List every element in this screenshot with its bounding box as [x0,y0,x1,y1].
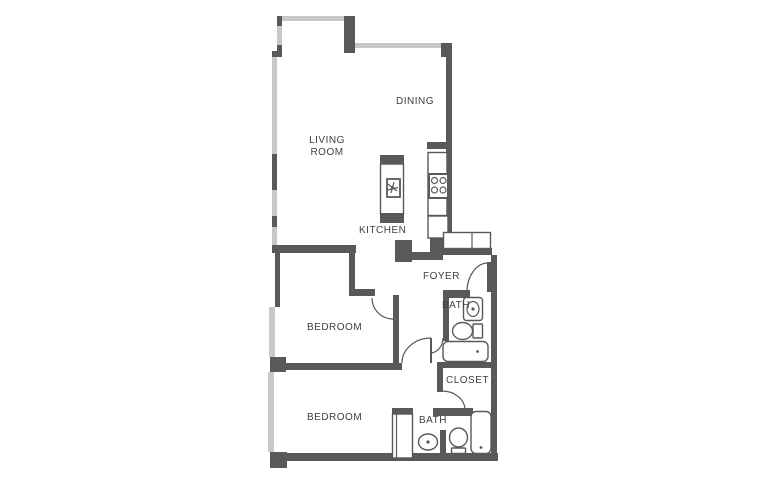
entry-door-arc [467,263,488,292]
upper-bedroom-door-arc [372,298,393,319]
lower-bedroom-label: BEDROOM [307,412,362,424]
range-burners-icon [429,174,448,198]
upper-bath-label: BATH [442,300,470,312]
dining-label: DINING [396,96,434,108]
floor-plan-drawing [0,0,768,480]
closet-label: CLOSET [446,375,489,387]
upper-bedroom-label: BEDROOM [307,322,362,334]
living-room-label: LIVING ROOM [297,135,357,159]
foyer-coat-closet [444,233,491,249]
island-sink-icon [387,179,400,197]
window-walls [268,16,441,452]
upper-bath-tub-icon [443,342,488,362]
lower-bath-label: BATH [419,415,447,427]
lower-bedroom-door [402,338,431,363]
foyer-label: FOYER [423,271,460,283]
floor-plan: LIVING ROOM DINING KITCHEN FOYER BATH CL… [0,0,768,480]
closet-door-arc [442,391,465,410]
lower-bath-sink-icon [419,434,438,450]
lower-bath-toilet-icon [450,428,468,454]
kitchen-label: KITCHEN [359,225,406,237]
upper-bath-toilet-icon [453,323,483,340]
bedroom-wardrobe [393,414,413,458]
lower-bath-tub-icon [471,412,491,454]
